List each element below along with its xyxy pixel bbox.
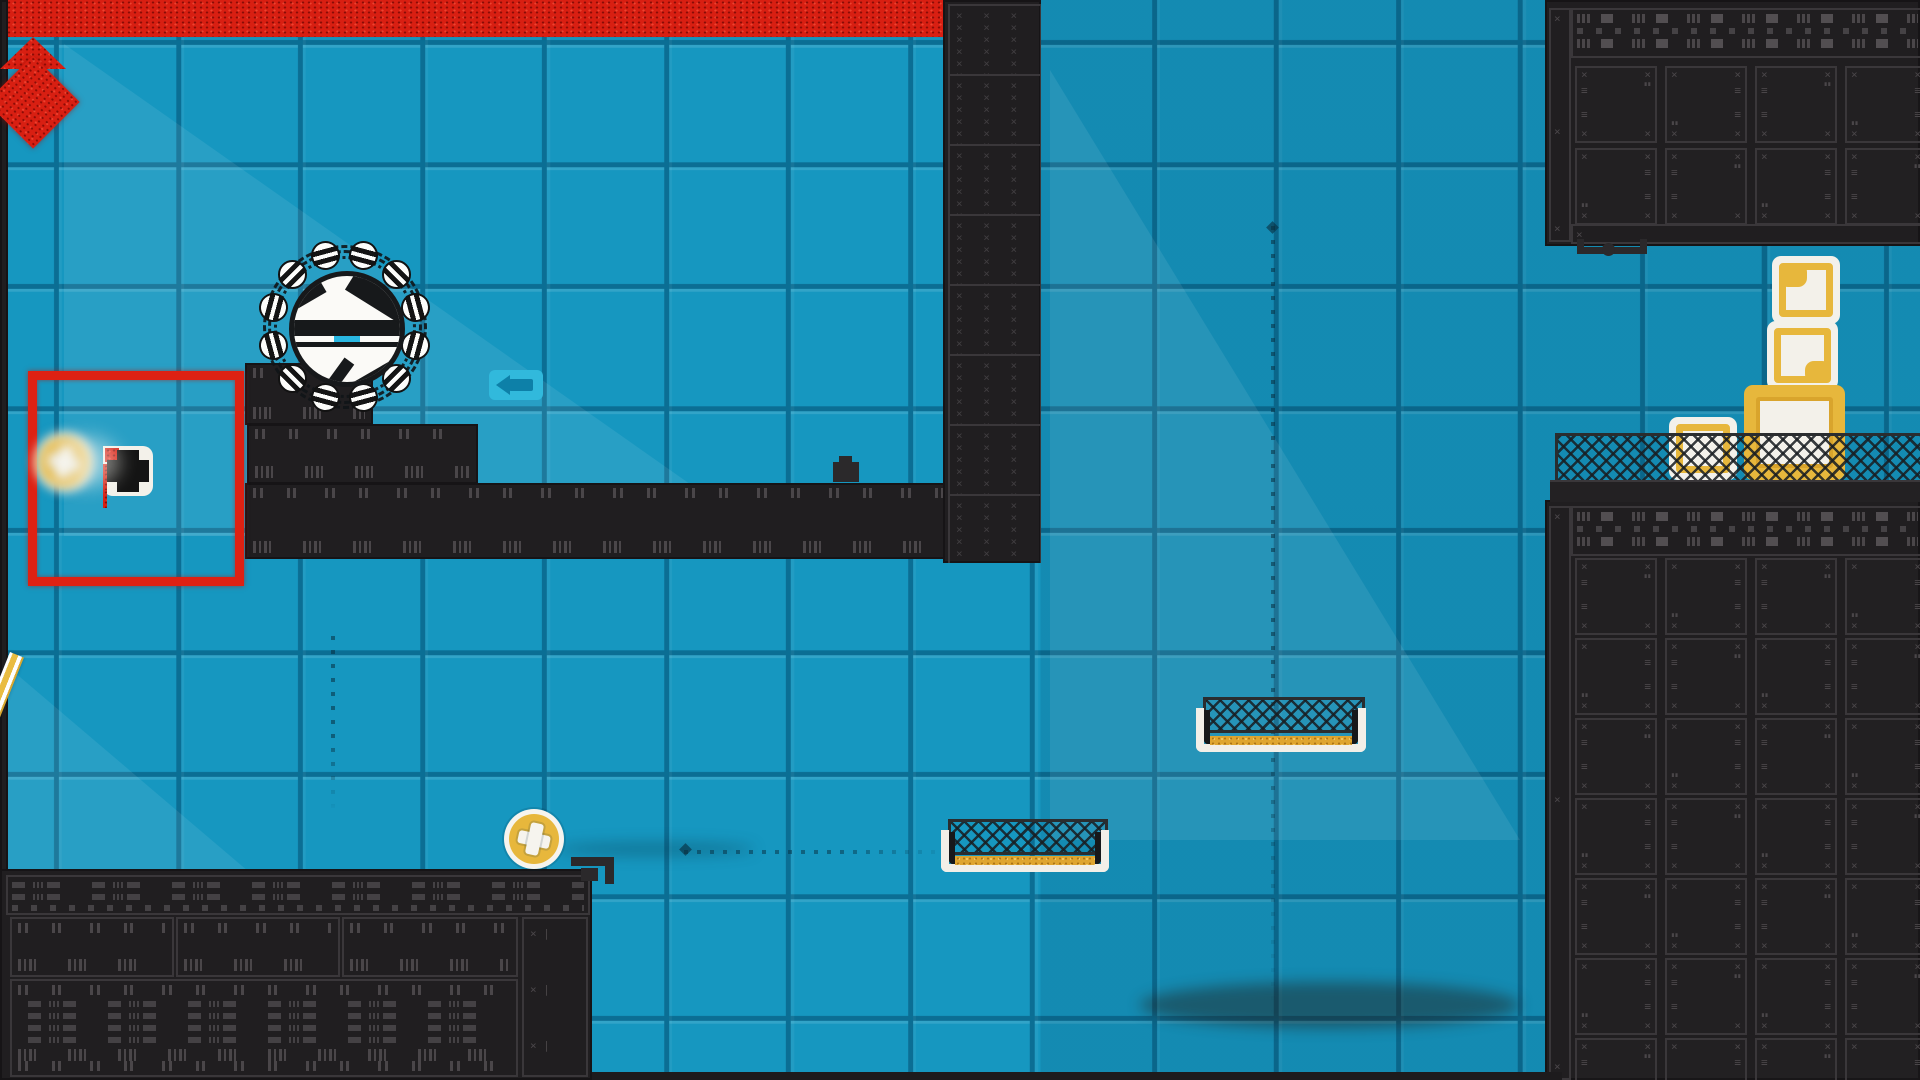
panel-x-mark: × [1761,701,1768,711]
panel-x-mark: × [1581,861,1588,871]
panel-x-mark: × [1734,562,1741,572]
right-structure: ×××××××≡≡∎∎××××≡≡∎∎××××≡≡∎∎××××≡≡∎∎××××≡… [1545,500,1920,1080]
panel-x-mark: × [1824,621,1831,631]
panel-x-mark: × [1644,1042,1651,1052]
panel-dot-mark: ∎∎ [1581,201,1588,211]
panel-dot-mark: ∎∎ [1671,931,1678,941]
panel-x-mark: × [1914,861,1920,871]
panel-dot-mark: ∎∎ [1851,611,1858,621]
panel-x-mark: × [1644,962,1651,972]
guide-path-vertical-main [1271,226,1275,1032]
panel-x-mark: × [1761,962,1768,972]
panel-x-mark: × [1671,962,1678,972]
bleft-panel-marks-top [350,923,510,933]
panel-x-mark: × [1824,722,1831,732]
panel-x-mark: × [1734,701,1741,711]
panel-x-mark: × [1824,1021,1831,1031]
panel-x-mark: × [1581,70,1588,80]
panel-x-mark: × [1644,70,1651,80]
panel-x-mark: × [1914,152,1920,162]
panel-eq-mark: ≡ [1761,578,1768,588]
panel-eq-mark: ≡ [1644,978,1651,988]
bleft-narrow-col: × |× |× | [522,917,588,1077]
lava-floor [0,0,970,37]
character-head [289,271,405,387]
panel-x-mark: × [1644,781,1651,791]
bleft-panel-2 [342,917,518,977]
panel-x-mark: × [1824,882,1831,892]
panel-plate: ××××≡≡∎∎ [1845,798,1920,875]
panel-eq-mark: ≡ [1644,1002,1651,1012]
panel-dot-mark: ∎∎ [1761,851,1768,861]
panel-x-mark: × [1671,211,1678,221]
panel-eq-mark: ≡ [1671,978,1678,988]
panel-dot-mark: ∎∎ [1914,972,1920,982]
panel-x-mark: × [1644,802,1651,812]
right-structure-strip-0: ××× [1549,506,1571,1080]
panel-plate: ××××≡≡∎∎ [1845,718,1920,795]
panel-x-mark: × [1824,962,1831,972]
panel-eq-mark: ≡ [1644,682,1651,692]
panel-plate: ××××≡≡∎∎ [1575,958,1657,1035]
panel-eq-mark: ≡ [1851,658,1858,668]
panel-eq-mark: ≡ [1851,682,1858,692]
panel-x-mark: × [1824,802,1831,812]
head-band [294,320,400,336]
panel-dot-mark: ∎∎ [1851,931,1858,941]
spike-ball-character[interactable] [252,234,432,414]
panel-x-mark: × [1761,129,1768,139]
panel-eq-mark: ≡ [1644,842,1651,852]
narrow-col-mark: × | [530,927,550,940]
panel-dot-mark: ∎∎ [1581,1011,1588,1021]
panel-eq-mark: ≡ [1734,602,1741,612]
panel-x-mark: × [1644,129,1651,139]
platform-stub [833,462,859,482]
lava-floor-base [592,1072,1562,1080]
panel-x-mark: × [1761,941,1768,951]
panel-dot-mark: ∎∎ [1851,119,1858,129]
platform-stub-part [839,456,852,463]
tall-dash-2 [28,1025,500,1031]
panel-plate: ××××≡≡∎∎ [1845,1038,1920,1080]
crate-top[interactable] [1772,256,1840,324]
tall-dash-0 [28,1001,500,1007]
panel-x-mark: × [1851,802,1858,812]
panel-x-mark: × [1761,621,1768,631]
panel-x-mark: × [1581,802,1588,812]
panel-dot-mark: ∎∎ [1644,80,1651,90]
panel-plate: ××××≡≡∎∎ [1575,148,1657,225]
panel-eq-mark: ≡ [1671,658,1678,668]
guide-path-vertical-main-marker [1266,221,1279,234]
panel-x-mark: × [1761,882,1768,892]
panel-plate: ××××≡≡∎∎ [1665,66,1747,143]
bleft-panel-marks-bottom [184,959,332,971]
panel-dot-mark: ∎∎ [1761,691,1768,701]
tall-marks-top [18,985,510,995]
band-dots [1577,526,1918,532]
panel-x-mark: × [1671,642,1678,652]
panel-x-mark: × [1824,781,1831,791]
wall-panel-xgrid: × × × × × × × × × × × × × × × × × × × × … [948,74,1041,146]
basket-gold-bed [955,856,1095,865]
panel-x-mark: × [1761,1042,1768,1052]
panel-dot-mark: ∎∎ [1761,201,1768,211]
panel-x-mark: × [1581,1042,1588,1052]
panel-eq-mark: ≡ [1671,168,1678,178]
panel-plate: ××××≡≡∎∎ [1665,638,1747,715]
bleft-dash-1 [12,882,584,888]
panel-eq-mark: ≡ [1851,818,1858,828]
panel-x-mark: × [1761,642,1768,652]
panel-x-mark: × [1734,621,1741,631]
panel-eq-mark: ≡ [1824,682,1831,692]
panel-eq-mark: ≡ [1824,978,1831,988]
top-right-structure: ××××××××≡≡∎∎××××≡≡∎∎××××≡≡∎∎××××≡≡∎∎××××… [1545,0,1920,246]
panel-x-mark: × [1914,781,1920,791]
panel-plate: ××××≡≡∎∎ [1575,558,1657,635]
panel-dot-mark: ∎∎ [1644,1052,1651,1062]
panel-plate: ××××≡≡∎∎ [1665,558,1747,635]
panel-x-mark: × [1734,129,1741,139]
long-platform [245,483,1041,559]
panel-plate: ××××≡≡∎∎ [1665,148,1747,225]
panel-x-mark: × [1824,129,1831,139]
panel-eq-mark: ≡ [1581,898,1588,908]
panel-x-mark: × [1581,882,1588,892]
panel-x-mark: × [1824,1042,1831,1052]
panel-plate: ××××≡≡∎∎ [1755,958,1837,1035]
panel-x-mark: × [1851,722,1858,732]
panel-eq-mark: ≡ [1734,1058,1741,1068]
panel-eq-mark: ≡ [1671,818,1678,828]
panel-x-mark: × [1734,642,1741,652]
panel-x-mark: × [1851,781,1858,791]
panel-x-mark: × [1824,70,1831,80]
panel-x-mark: × [1914,70,1920,80]
panel-x-mark: × [1671,70,1678,80]
panel-eq-mark: ≡ [1581,110,1588,120]
panel-eq-mark: ≡ [1824,192,1831,202]
panel-x-mark: × [1824,152,1831,162]
panel-x-mark: × [1914,802,1920,812]
panel-eq-mark: ≡ [1824,658,1831,668]
panel-eq-mark: ≡ [1761,1058,1768,1068]
wall-panel-xgrid: × × × × × × × × × × × × × × × × × × × × … [948,144,1041,216]
tall-marks-bottom [18,1049,510,1061]
panel-dot-mark: ∎∎ [1824,572,1831,582]
long-platform-marks-bottom [253,541,1033,553]
panel-eq-mark: ≡ [1581,602,1588,612]
bleft-panel-0 [10,917,174,977]
gadget-edge-tick [103,490,107,508]
crate-middle[interactable] [1767,321,1838,390]
panel-x-mark: × [1581,152,1588,162]
panel-x-mark: × [1581,781,1588,791]
panel-eq-mark: ≡ [1761,110,1768,120]
panel-eq-mark: ≡ [1734,922,1741,932]
panel-plate: ××××≡≡∎∎ [1755,878,1837,955]
bleft-panel-1 [176,917,340,977]
hanging-bracket-part [1640,239,1647,248]
panel-eq-mark: ≡ [1914,762,1920,772]
panel-x-mark: × [1914,562,1920,572]
panel-dot-mark: ∎∎ [1851,771,1858,781]
panel-x-mark: × [1671,802,1678,812]
mesh-basket-low[interactable] [941,819,1109,872]
panel-eq-mark: ≡ [1581,762,1588,772]
panel-x-mark: × [1581,722,1588,732]
panel-plate: ××××≡≡∎∎ [1755,66,1837,143]
panel-plate: ××××≡≡∎∎ [1575,638,1657,715]
wall-column: × × × × × × × × × × × × × × × × × × × × … [943,0,1041,563]
panel-plate: ××××≡≡∎∎ [1755,718,1837,795]
panel-eq-mark: ≡ [1644,192,1651,202]
panel-x-mark: × [1671,861,1678,871]
panel-plate: ××××≡≡∎∎ [1665,958,1747,1035]
panel-eq-mark: ≡ [1761,86,1768,96]
panel-eq-mark: ≡ [1824,842,1831,852]
panel-dot-mark: ∎∎ [1914,812,1920,822]
panel-x-mark: × [1761,802,1768,812]
panel-x-mark: × [1824,562,1831,572]
panel-band-strip [1571,506,1920,556]
panel-eq-mark: ≡ [1761,762,1768,772]
panel-dot-mark: ∎∎ [1671,771,1678,781]
panel-eq-mark: ≡ [1824,1002,1831,1012]
panel-x-mark: × [1734,941,1741,951]
panel-x-mark: × [1914,882,1920,892]
panel-eq-mark: ≡ [1851,192,1858,202]
panel-eq-mark: ≡ [1914,898,1920,908]
bleft-dots [12,905,584,911]
panel-x-mark: × [1644,722,1651,732]
panel-eq-mark: ≡ [1734,578,1741,588]
panel-x-mark: × [1671,129,1678,139]
panel-eq-mark: ≡ [1581,86,1588,96]
panel-x-mark: × [1581,562,1588,572]
panel-eq-mark: ≡ [1761,738,1768,748]
panel-eq-mark: ≡ [1581,738,1588,748]
arrow-left-shaft [509,379,533,391]
bleft-panel-marks-top [18,923,166,933]
panel-x-mark: × [1914,642,1920,652]
pipe-bracket-platform-part [605,857,614,884]
panel-plate: ××××≡≡∎∎ [1845,878,1920,955]
panel-x-mark: × [1914,962,1920,972]
panel-x-mark: × [1824,861,1831,871]
panel-eq-mark: ≡ [1824,818,1831,828]
panel-dot-mark: ∎∎ [1824,732,1831,742]
panel-eq-mark: ≡ [1644,818,1651,828]
step-platform-mid [247,424,478,484]
panel-band-strip [1571,8,1920,58]
panel-eq-mark: ≡ [1644,658,1651,668]
strip-x-mark: × [1554,510,1561,523]
panel-x-mark: × [1671,781,1678,791]
strip-x-mark: × [1554,125,1561,138]
panel-x-mark: × [1914,129,1920,139]
shadow-smudge-1 [555,842,755,856]
panel-x-mark: × [1581,129,1588,139]
panel-eq-mark: ≡ [1671,842,1678,852]
panel-x-mark: × [1914,1042,1920,1052]
panel-plate: ××××≡≡∎∎ [1575,798,1657,875]
bleft-tall-panel [10,979,518,1077]
panel-dot-mark: ∎∎ [1824,80,1831,90]
panel-eq-mark: ≡ [1734,110,1741,120]
panel-x-mark: × [1851,882,1858,892]
panel-x-mark: × [1644,701,1651,711]
band-bars-top [1577,512,1918,521]
game-scene[interactable]: × × × × × × × × × × × × × × × × × × × × … [0,0,1920,1080]
coin-motion-smear [50,436,120,488]
panel-x-mark: × [1671,562,1678,572]
panel-x-mark: × [1644,642,1651,652]
panel-x-mark: × [1851,211,1858,221]
panel-plate: ××××≡≡∎∎ [1755,1038,1837,1080]
strip-x-mark: × [1554,222,1561,235]
hanging-bracket-part [1602,243,1615,256]
panel-x-mark: × [1671,621,1678,631]
top-right-structure-strip-1: × [1571,224,1920,244]
band-bars-top [1577,14,1918,23]
panel-x-mark: × [1734,962,1741,972]
band-bars-bottom [1577,39,1918,48]
panel-eq-mark: ≡ [1581,922,1588,932]
panel-x-mark: × [1671,882,1678,892]
bleft-panel-marks-bottom [18,959,166,971]
panel-plate: ××××≡≡∎∎ [1845,66,1920,143]
panel-x-mark: × [1761,152,1768,162]
panel-dot-mark: ∎∎ [1671,119,1678,129]
tall-marks-bottom2 [18,1061,510,1071]
panel-x-mark: × [1824,211,1831,221]
panel-eq-mark: ≡ [1824,168,1831,178]
wall-panel-xgrid: × × × × × × × × × × × × × × × × × × × × … [948,424,1041,496]
panel-x-mark: × [1914,621,1920,631]
panel-eq-mark: ≡ [1761,922,1768,932]
panel-plate: ××××≡≡∎∎ [1575,878,1657,955]
panel-dot-mark: ∎∎ [1734,162,1741,172]
panel-eq-mark: ≡ [1761,898,1768,908]
wall-panel-xgrid: × × × × × × × × × × × × × × × × × × × × … [948,494,1041,563]
panel-plate: ××××≡≡∎∎ [1755,638,1837,715]
panel-x-mark: × [1914,722,1920,732]
arrow-left-sign [489,370,543,400]
arrow-left-head [496,375,510,395]
hanging-bracket-part [1577,239,1584,248]
panel-eq-mark: ≡ [1734,762,1741,772]
panel-dot-mark: ∎∎ [1824,892,1831,902]
panel-x-mark: × [1851,562,1858,572]
panel-dot-mark: ∎∎ [1914,162,1920,172]
wall-panel-xgrid: × × × × × × × × × × × × × × × × × × × × … [948,4,1041,76]
panel-plate: ××××≡≡∎∎ [1845,958,1920,1035]
panel-dot-mark: ∎∎ [1914,652,1920,662]
strip-x-mark: × [1554,12,1561,25]
panel-eq-mark: ≡ [1734,86,1741,96]
panel-x-mark: × [1851,1042,1858,1052]
panel-x-mark: × [1851,70,1858,80]
panel-plate: ××××≡≡∎∎ [1755,558,1837,635]
panel-x-mark: × [1851,701,1858,711]
tall-dash-1 [28,1013,500,1019]
panel-eq-mark: ≡ [1581,1058,1588,1068]
panel-dot-mark: ∎∎ [1824,1052,1831,1062]
panel-x-mark: × [1671,1021,1678,1031]
panel-dot-mark: ∎∎ [1581,851,1588,861]
panel-dot-mark: ∎∎ [1644,572,1651,582]
panel-dot-mark: ∎∎ [1671,611,1678,621]
panel-x-mark: × [1644,882,1651,892]
crate-gold-patch [1805,361,1831,383]
panel-x-mark: × [1734,882,1741,892]
panel-eq-mark: ≡ [1644,168,1651,178]
panel-x-mark: × [1914,1021,1920,1031]
panel-plate: ××××≡≡∎∎ [1755,148,1837,225]
panel-x-mark: × [1671,941,1678,951]
panel-x-mark: × [1851,1021,1858,1031]
panel-plate: ××××≡≡∎∎ [1665,878,1747,955]
panel-x-mark: × [1671,701,1678,711]
panel-x-mark: × [1734,1021,1741,1031]
panel-eq-mark: ≡ [1914,602,1920,612]
narrow-col-mark: × | [530,983,550,996]
panel-x-mark: × [1644,861,1651,871]
guide-path-vertical-diamond [331,636,335,816]
panel-dot-mark: ∎∎ [1761,1011,1768,1021]
panel-x-mark: × [1914,941,1920,951]
panel-x-mark: × [1761,211,1768,221]
panel-x-mark: × [1734,781,1741,791]
panel-dot-mark: ∎∎ [1734,652,1741,662]
head-band-lower [294,342,400,347]
mesh-basket-high[interactable] [1196,697,1366,752]
panel-x-mark: × [1734,211,1741,221]
panel-x-mark: × [1851,962,1858,972]
tall-dash-3 [28,1037,500,1043]
basket-gold-bed [1210,736,1352,745]
panel-x-mark: × [1644,941,1651,951]
panel-eq-mark: ≡ [1734,738,1741,748]
panel-x-mark: × [1734,802,1741,812]
bleft-panel-marks-top [184,923,332,933]
panel-eq-mark: ≡ [1734,898,1741,908]
panel-eq-mark: ≡ [1851,1002,1858,1012]
panel-x-mark: × [1851,861,1858,871]
panel-eq-mark: ≡ [1914,86,1920,96]
bleft-top-strip [6,875,590,915]
crate-gold-patch [1779,263,1807,287]
panel-eq-mark: ≡ [1914,1058,1920,1068]
panel-eq-mark: ≡ [1671,1002,1678,1012]
panel-eq-mark: ≡ [1671,682,1678,692]
panel-plate: ××××≡≡∎∎ [1575,718,1657,795]
panel-x-mark: × [1581,941,1588,951]
panel-x-mark: × [1761,861,1768,871]
panel-x-mark: × [1734,152,1741,162]
wall-panel-xgrid: × × × × × × × × × × × × × × × × × × × × … [948,284,1041,356]
coin-token[interactable] [504,809,564,869]
panel-x-mark: × [1761,781,1768,791]
panel-x-mark: × [1761,70,1768,80]
panel-x-mark: × [1824,642,1831,652]
panel-x-mark: × [1734,1042,1741,1052]
panel-x-mark: × [1734,722,1741,732]
panel-x-mark: × [1761,722,1768,732]
